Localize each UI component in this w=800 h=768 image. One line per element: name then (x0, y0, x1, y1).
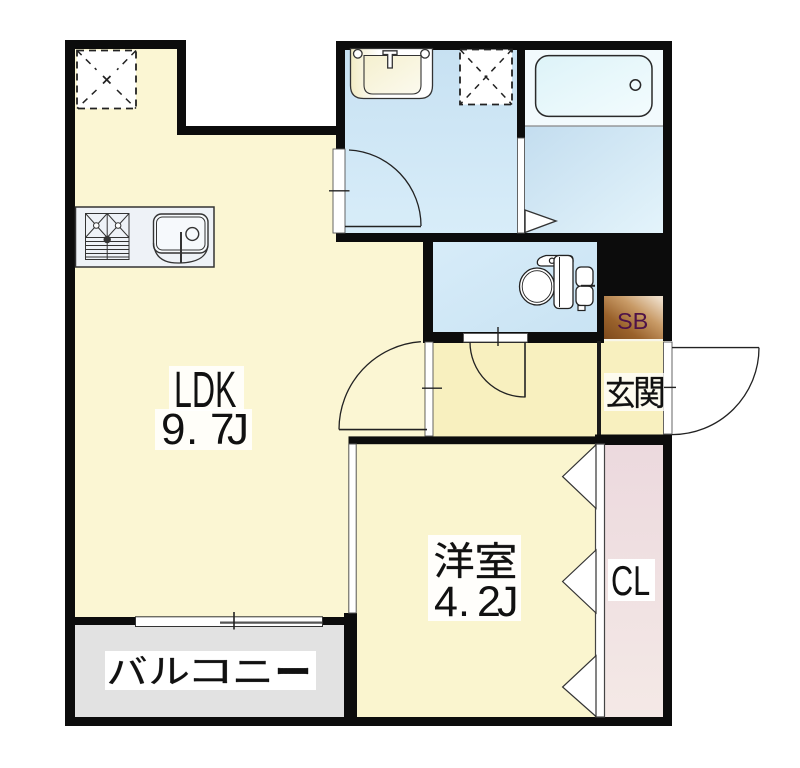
svg-text:.: . (458, 578, 470, 626)
svg-text:SB: SB (617, 308, 648, 334)
svg-text:9: 9 (161, 405, 185, 454)
svg-text:4: 4 (434, 578, 458, 626)
svg-text:.: . (186, 405, 198, 454)
svg-text:J: J (227, 405, 249, 454)
svg-text:CL: CL (611, 557, 650, 604)
svg-text:J: J (497, 578, 519, 626)
